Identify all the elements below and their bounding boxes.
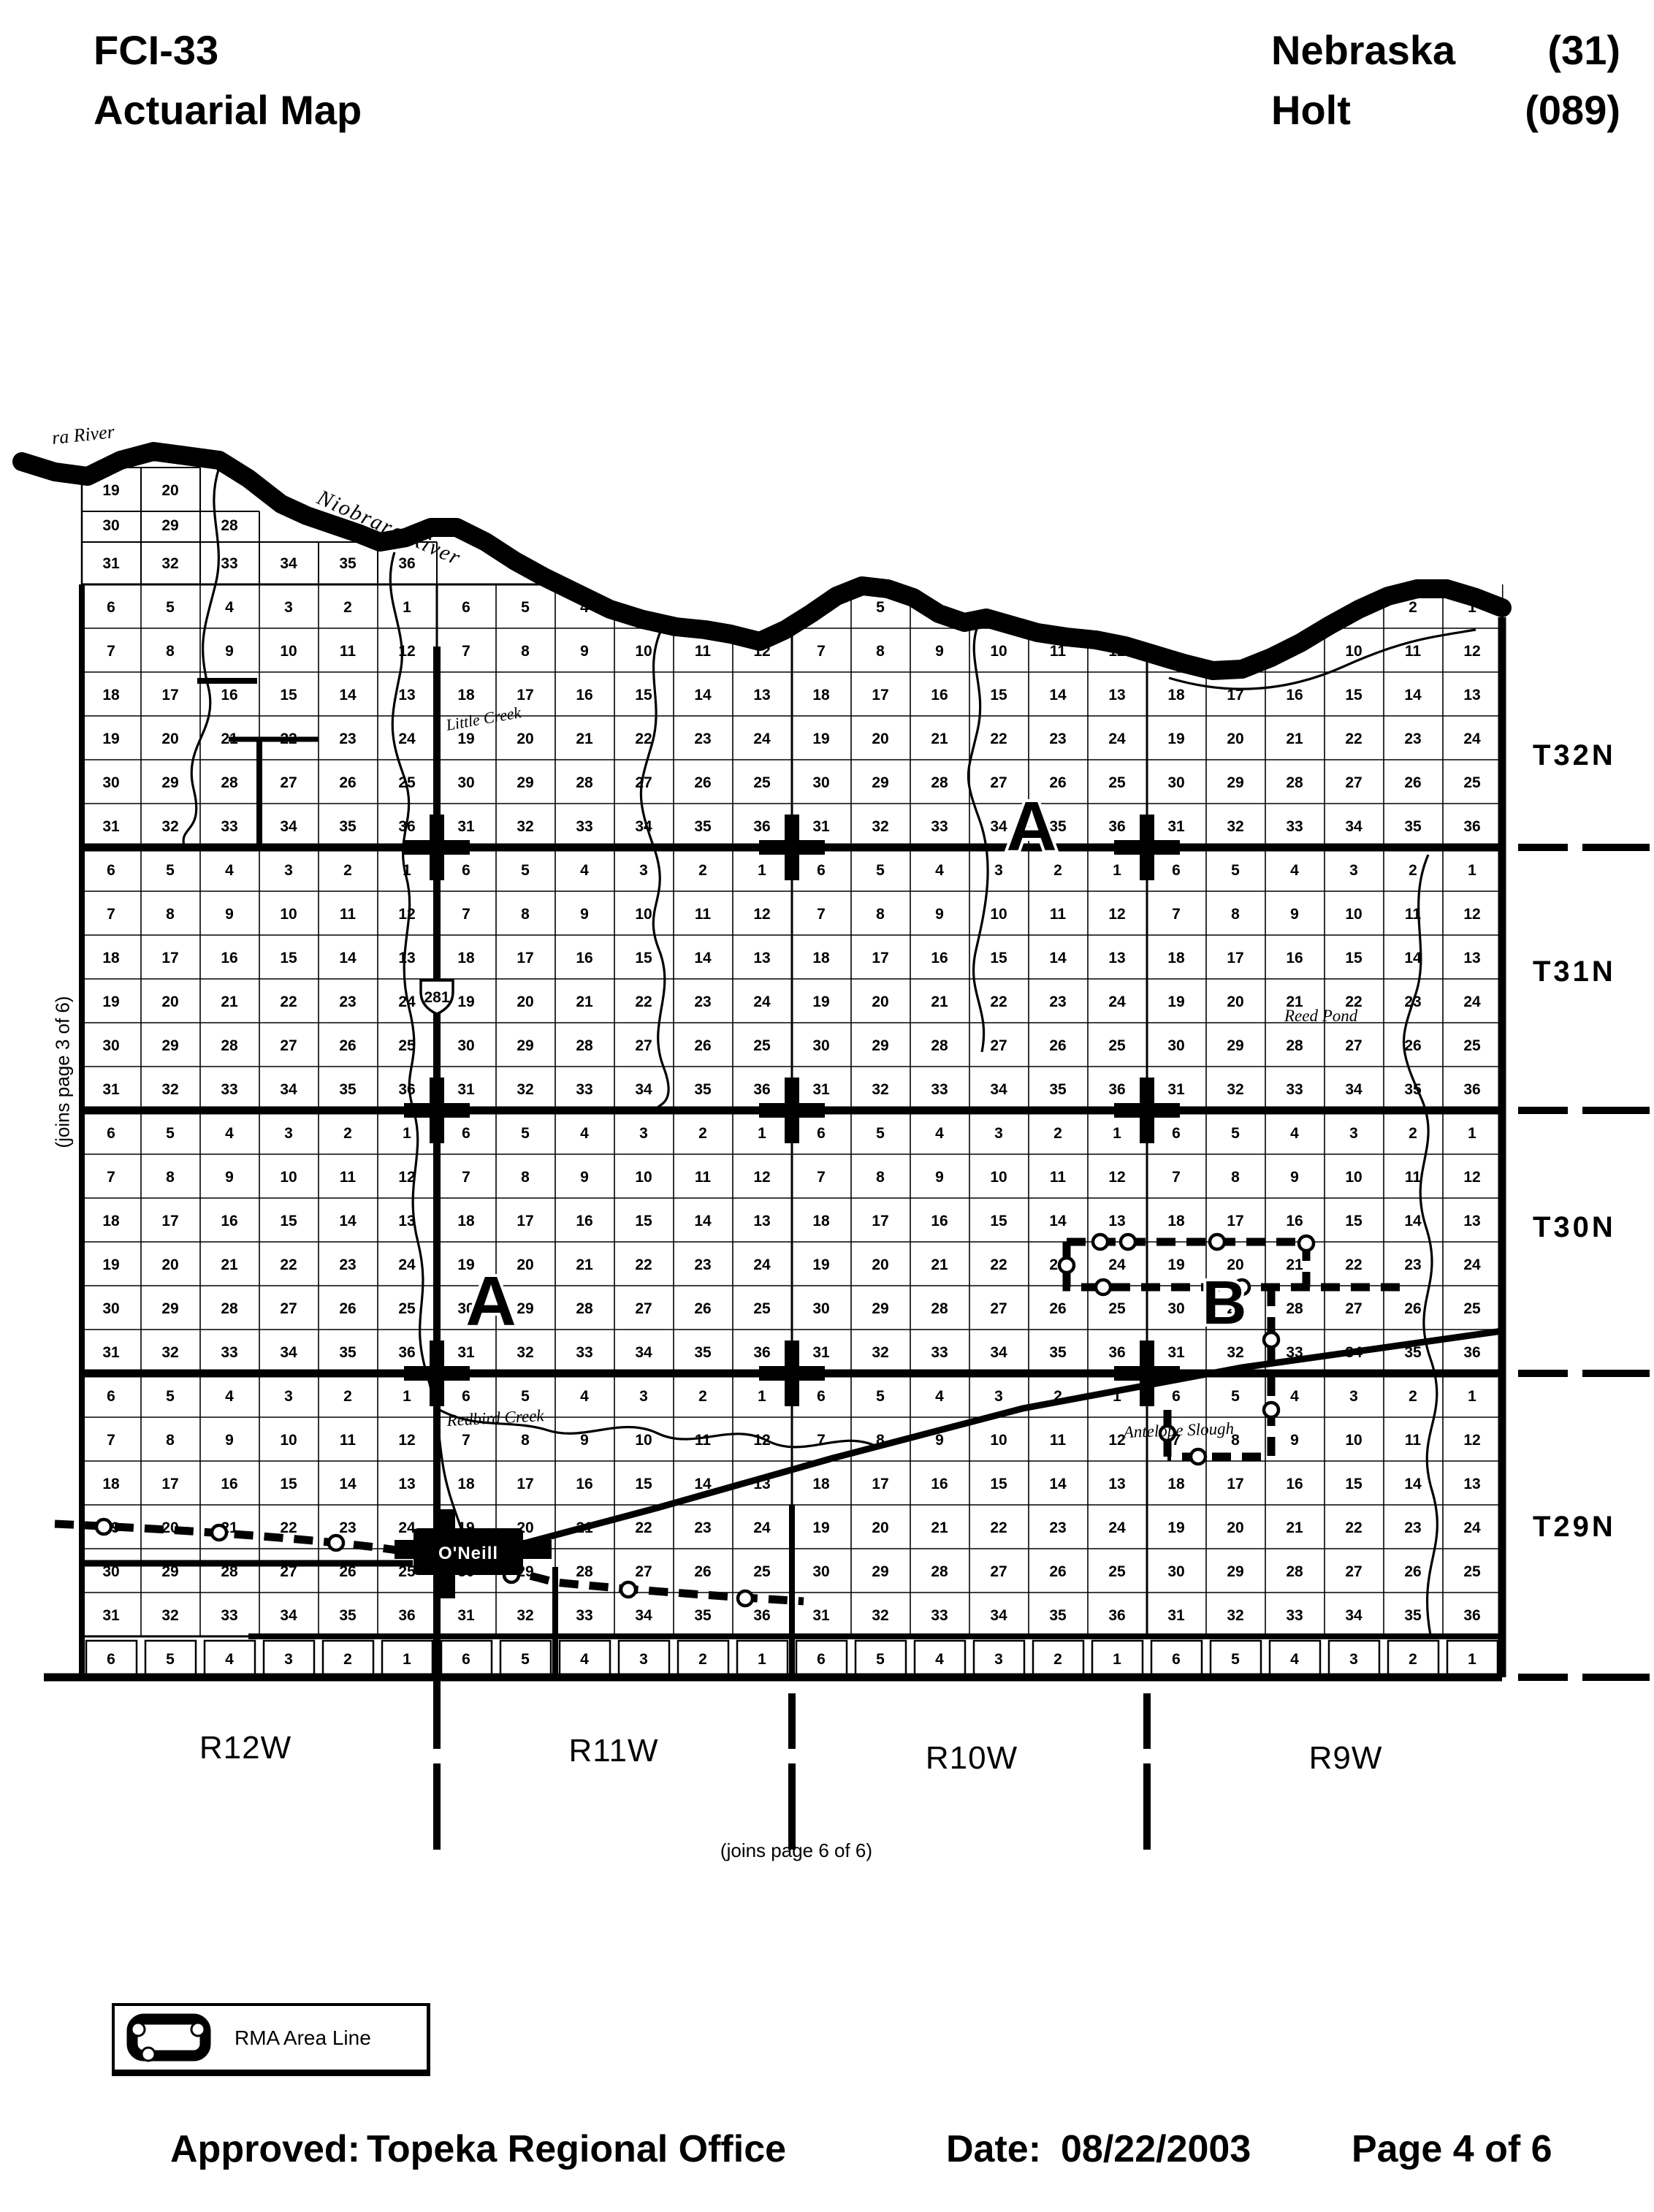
section-number: 5	[876, 1388, 885, 1405]
section-number: 35	[339, 1607, 357, 1624]
section-number: 32	[1227, 1607, 1243, 1624]
section-number: 24	[1108, 1256, 1126, 1273]
section-number: 1	[1113, 862, 1121, 879]
section-number: 3	[1349, 1651, 1358, 1668]
rma-node-circle	[1121, 1235, 1135, 1249]
section-number: 30	[1167, 1300, 1184, 1317]
section-number: 23	[1049, 994, 1066, 1010]
section-number: 16	[931, 1213, 948, 1229]
section-number: 35	[1049, 1081, 1067, 1098]
section-number: 23	[1404, 1519, 1421, 1536]
section-number: 23	[694, 1256, 711, 1273]
section-number: 20	[872, 1256, 888, 1273]
section-number: 8	[521, 1169, 530, 1186]
section-number: 7	[107, 643, 115, 660]
section-number: 11	[1050, 1169, 1067, 1186]
section-number: 9	[1290, 906, 1299, 923]
section-number: 29	[161, 1300, 178, 1317]
section-number: 31	[1167, 1081, 1185, 1098]
section-number: 16	[576, 1476, 592, 1492]
section-number: 3	[284, 1125, 293, 1142]
section-number: 27	[280, 1037, 297, 1054]
section-number: 20	[161, 1256, 178, 1273]
section-number: 33	[931, 818, 948, 835]
section-number: 8	[521, 906, 530, 923]
section-number: 14	[694, 950, 712, 966]
section-number: 24	[1463, 1519, 1481, 1536]
section-number: 32	[517, 1344, 533, 1361]
section-number: 29	[517, 1037, 533, 1054]
section-number: 22	[635, 1519, 652, 1536]
section-number: 23	[694, 994, 711, 1010]
section-number: 26	[1049, 1037, 1066, 1054]
section-number: 3	[284, 862, 293, 879]
section-number: 1	[1468, 1125, 1476, 1142]
section-number: 26	[694, 1300, 711, 1317]
section-number: 18	[457, 950, 475, 966]
section-number: 17	[872, 687, 888, 703]
section-number: 16	[1286, 1476, 1303, 1492]
section-number: 36	[398, 1081, 415, 1098]
section-number: 17	[1227, 1213, 1243, 1229]
section-number: 12	[398, 906, 415, 923]
section-number: 32	[161, 1344, 178, 1361]
township-label-t30n: T30N	[1533, 1211, 1616, 1244]
section-number: 19	[1167, 994, 1184, 1010]
section-number: 21	[221, 994, 238, 1010]
section-number: 35	[694, 1344, 712, 1361]
section-number: 6	[1172, 1651, 1181, 1668]
section-number: 28	[221, 517, 238, 534]
section-number: 4	[1290, 1125, 1299, 1142]
section-number: 35	[339, 1081, 357, 1098]
section-number: 9	[1290, 1432, 1299, 1449]
section-number: 17	[517, 687, 533, 703]
section-number: 21	[576, 994, 593, 1010]
section-number: 10	[990, 643, 1007, 660]
section-number: 14	[1404, 1476, 1422, 1492]
section-number: 29	[1227, 1563, 1243, 1580]
section-number: 9	[225, 906, 234, 923]
section-number: 18	[1167, 687, 1185, 703]
section-number: 15	[635, 687, 652, 703]
rma-node-circle	[1299, 1236, 1314, 1251]
section-number: 14	[1049, 1476, 1067, 1492]
section-number: 3	[994, 1388, 1003, 1405]
section-number: 34	[990, 818, 1007, 835]
section-number: 7	[817, 906, 826, 923]
section-number: 31	[102, 1081, 120, 1098]
section-number: 7	[462, 1432, 470, 1449]
section-number: 4	[580, 1125, 589, 1142]
section-number: 12	[398, 1432, 415, 1449]
section-number: 5	[521, 599, 530, 616]
section-number: 19	[102, 1256, 119, 1273]
section-number: 33	[221, 1081, 237, 1098]
section-number: 3	[639, 1125, 648, 1142]
rma-area-line-icon	[122, 2012, 216, 2064]
section-number: 6	[462, 1125, 470, 1142]
section-number: 4	[225, 1388, 234, 1405]
section-number: 14	[694, 687, 712, 703]
section-number: 4	[935, 1388, 944, 1405]
section-number: 20	[161, 994, 178, 1010]
section-number: 13	[1463, 1476, 1480, 1492]
section-number: 15	[990, 1476, 1007, 1492]
section-number: 24	[1108, 731, 1126, 747]
section-number: 2	[698, 1651, 707, 1668]
section-number: 26	[694, 1037, 711, 1054]
section-number: 9	[1290, 1169, 1299, 1186]
section-number: 34	[635, 1344, 652, 1361]
section-number: 2	[1409, 1125, 1417, 1142]
section-number: 34	[990, 1607, 1007, 1624]
section-number: 21	[1286, 731, 1303, 747]
section-number: 26	[1404, 1563, 1421, 1580]
section-number: 27	[990, 1563, 1007, 1580]
section-number: 13	[398, 687, 415, 703]
section-number: 26	[694, 774, 711, 791]
section-number: 19	[102, 731, 119, 747]
section-number: 9	[935, 1169, 944, 1186]
section-number: 8	[166, 1432, 175, 1449]
section-number: 30	[812, 1037, 829, 1054]
section-number: 20	[517, 994, 533, 1010]
section-number: 22	[990, 1519, 1007, 1536]
section-number: 1	[1468, 1388, 1476, 1405]
section-number: 6	[107, 1388, 115, 1405]
section-number: 28	[931, 1300, 948, 1317]
section-number: 33	[931, 1344, 948, 1361]
section-number: 27	[1345, 774, 1362, 791]
section-number: 13	[398, 1476, 415, 1492]
section-number: 10	[1345, 1169, 1362, 1186]
section-number: 1	[403, 599, 411, 616]
section-number: 14	[1404, 687, 1422, 703]
section-number: 14	[694, 1213, 712, 1229]
section-number: 15	[1345, 950, 1363, 966]
section-number: 11	[1050, 1432, 1067, 1449]
section-number: 18	[457, 1213, 475, 1229]
section-number: 17	[161, 950, 178, 966]
section-number: 10	[990, 1169, 1007, 1186]
section-number: 31	[1167, 1607, 1185, 1624]
section-number: 30	[1167, 1563, 1184, 1580]
section-number: 23	[339, 1519, 356, 1536]
rma-node-circle	[1264, 1403, 1278, 1417]
section-number: 32	[517, 818, 533, 835]
section-number: 22	[280, 994, 297, 1010]
section-number: 4	[225, 1651, 234, 1668]
section-number: 2	[343, 862, 352, 879]
section-number: 33	[1286, 818, 1303, 835]
section-number: 18	[102, 1213, 120, 1229]
section-number: 36	[1463, 1607, 1480, 1624]
section-number: 8	[166, 906, 175, 923]
section-number: 17	[161, 1213, 178, 1229]
section-number: 16	[221, 950, 237, 966]
section-number: 4	[935, 1651, 944, 1668]
section-number: 27	[990, 1037, 1007, 1054]
section-number: 11	[1405, 1169, 1422, 1186]
section-number: 34	[280, 818, 297, 835]
approved-label: Approved:	[170, 2127, 360, 2171]
section-number: 20	[1227, 1519, 1243, 1536]
section-number: 3	[1349, 1388, 1358, 1405]
section-number: 8	[876, 643, 885, 660]
section-number: 30	[102, 1300, 119, 1317]
section-number: 1	[758, 1388, 766, 1405]
section-number: 6	[107, 862, 115, 879]
section-number: 6	[1172, 1125, 1181, 1142]
section-number: 2	[1053, 1125, 1062, 1142]
section-number: 6	[817, 1125, 826, 1142]
section-number: 26	[694, 1563, 711, 1580]
section-number: 21	[1286, 1519, 1303, 1536]
section-number: 35	[1049, 1344, 1067, 1361]
section-number: 9	[935, 643, 944, 660]
section-number: 2	[698, 1125, 707, 1142]
section-number: 27	[990, 1300, 1007, 1317]
section-number: 24	[398, 1519, 416, 1536]
section-number: 5	[166, 1388, 175, 1405]
section-number: 20	[161, 482, 178, 499]
section-number: 31	[812, 1344, 830, 1361]
section-number: 28	[1286, 1300, 1303, 1317]
section-number: 14	[1404, 950, 1422, 966]
section-number: 22	[1345, 1256, 1362, 1273]
section-number: 31	[812, 1607, 830, 1624]
section-number: 5	[876, 1125, 885, 1142]
section-number: 6	[462, 1651, 470, 1668]
section-number: 3	[284, 1388, 293, 1405]
section-number: 22	[990, 994, 1007, 1010]
section-number: 34	[1345, 1081, 1363, 1098]
section-number: 29	[517, 774, 533, 791]
section-number: 18	[457, 1476, 475, 1492]
section-number: 3	[994, 1125, 1003, 1142]
section-number: 25	[398, 1300, 416, 1317]
section-number: 27	[280, 774, 297, 791]
section-number: 7	[107, 1169, 115, 1186]
section-number: 6	[1172, 1388, 1181, 1405]
section-number: 6	[107, 1651, 115, 1668]
section-number: 35	[339, 1344, 357, 1361]
section-number: 1	[758, 1651, 766, 1668]
section-number: 15	[280, 1213, 297, 1229]
range-label-r10w: R10W	[926, 1740, 1018, 1777]
section-number: 10	[1345, 1432, 1362, 1449]
section-number: 3	[639, 862, 648, 879]
section-number: 36	[753, 1344, 770, 1361]
section-number: 7	[817, 1169, 826, 1186]
section-number: 35	[694, 1607, 712, 1624]
section-number: 28	[576, 1037, 593, 1054]
range-label-r11w: R11W	[569, 1733, 659, 1769]
section-number: 2	[343, 1651, 352, 1668]
section-number: 36	[1108, 818, 1125, 835]
section-number: 36	[1108, 1607, 1125, 1624]
section-number: 27	[635, 1300, 652, 1317]
range-label-r12w: R12W	[199, 1730, 291, 1766]
section-number: 36	[398, 555, 415, 572]
section-number: 13	[753, 687, 770, 703]
section-number: 5	[876, 599, 885, 616]
section-number: 16	[931, 687, 948, 703]
section-number: 6	[817, 1388, 826, 1405]
section-number: 29	[872, 1037, 888, 1054]
section-number: 15	[280, 950, 297, 966]
section-number: 33	[576, 818, 592, 835]
section-number: 2	[1409, 1651, 1417, 1668]
section-number: 17	[1227, 1476, 1243, 1492]
section-number: 32	[1227, 1344, 1243, 1361]
section-number: 4	[580, 1651, 589, 1668]
township-label-t32n: T32N	[1533, 739, 1616, 772]
section-number: 15	[990, 687, 1007, 703]
section-number: 31	[102, 555, 120, 572]
section-number: 18	[812, 1213, 830, 1229]
section-number: 31	[1167, 818, 1185, 835]
section-number: 28	[576, 1300, 593, 1317]
section-number: 18	[812, 687, 830, 703]
section-number: 28	[1286, 1037, 1303, 1054]
section-number: 11	[695, 1432, 712, 1449]
section-number: 24	[1463, 994, 1481, 1010]
section-number: 18	[102, 1476, 120, 1492]
section-number: 28	[221, 1037, 238, 1054]
section-number: 20	[517, 731, 533, 747]
section-number: 14	[339, 1476, 357, 1492]
section-number: 29	[161, 774, 178, 791]
section-number: 11	[1050, 906, 1067, 923]
section-number: 19	[1167, 731, 1184, 747]
section-number: 10	[280, 906, 297, 923]
section-number: 26	[339, 774, 356, 791]
creek-path	[968, 622, 988, 1052]
section-number: 27	[1345, 1037, 1362, 1054]
section-number: 32	[872, 818, 888, 835]
section-number: 22	[635, 994, 652, 1010]
section-number: 10	[990, 1432, 1007, 1449]
section-number: 8	[521, 643, 530, 660]
section-number: 32	[872, 1344, 888, 1361]
rma-node-circle	[738, 1591, 752, 1606]
section-number: 6	[462, 1388, 470, 1405]
section-number: 28	[931, 1563, 948, 1580]
section-number: 10	[280, 1432, 297, 1449]
section-number: 27	[990, 774, 1007, 791]
slough-label: Antelope Slough	[1121, 1419, 1234, 1441]
section-number: 19	[1167, 1256, 1184, 1273]
section-number: 18	[457, 687, 475, 703]
section-number: 34	[635, 1607, 652, 1624]
rma-node-circle	[621, 1582, 636, 1597]
section-number: 24	[1463, 1256, 1481, 1273]
section-number: 26	[339, 1300, 356, 1317]
section-number: 12	[753, 1169, 770, 1186]
section-number: 15	[635, 1213, 652, 1229]
creek-path	[183, 468, 219, 846]
section-number: 12	[1463, 1432, 1480, 1449]
section-number: 15	[1345, 1213, 1363, 1229]
section-number: 31	[812, 818, 830, 835]
section-number: 8	[521, 1432, 530, 1449]
section-number: 13	[753, 950, 770, 966]
section-number: 18	[1167, 950, 1185, 966]
section-number: 4	[225, 862, 234, 879]
section-number: 17	[872, 1476, 888, 1492]
section-number: 4	[1290, 1651, 1299, 1668]
section-number: 25	[1463, 774, 1481, 791]
section-number: 13	[753, 1213, 770, 1229]
section-number: 24	[1108, 1519, 1126, 1536]
section-number: 24	[398, 1256, 416, 1273]
section-number: 22	[990, 1256, 1007, 1273]
section-number: 12	[1463, 643, 1480, 660]
section-number: 25	[1108, 1563, 1126, 1580]
section-number: 36	[398, 1607, 415, 1624]
section-number: 18	[102, 687, 120, 703]
section-number: 4	[225, 1125, 234, 1142]
section-number: 32	[872, 1081, 888, 1098]
section-number: 19	[102, 482, 119, 499]
section-number: 8	[1231, 906, 1240, 923]
rma-node-circle	[96, 1519, 111, 1534]
section-number: 17	[872, 1213, 888, 1229]
section-number: 27	[1345, 1563, 1362, 1580]
section-number: 34	[635, 1081, 652, 1098]
section-number: 29	[1227, 1037, 1243, 1054]
section-number: 36	[1108, 1344, 1125, 1361]
section-number: 20	[872, 731, 888, 747]
section-number: 11	[340, 643, 357, 660]
section-number: 23	[1404, 731, 1421, 747]
section-number: 36	[753, 818, 770, 835]
area-marker-a: A	[465, 1262, 516, 1340]
rma-node-circle	[1191, 1449, 1205, 1464]
area-marker-b: B	[1203, 1268, 1247, 1337]
section-number: 29	[161, 517, 178, 534]
legend-label: RMA Area Line	[235, 2026, 371, 2050]
section-number: 2	[1409, 862, 1417, 879]
date-label: Date:	[946, 2127, 1041, 2171]
section-number: 16	[1286, 687, 1303, 703]
section-number: 8	[166, 1169, 175, 1186]
section-number: 25	[753, 1037, 771, 1054]
section-number: 31	[457, 1344, 475, 1361]
section-number: 30	[102, 1037, 119, 1054]
section-number: 2	[698, 862, 707, 879]
section-number: 32	[161, 1081, 178, 1098]
footer: Approved: Topeka Regional Office Date: 0…	[0, 2127, 1654, 2178]
section-number: 27	[635, 1037, 652, 1054]
section-number: 4	[580, 862, 589, 879]
section-number: 26	[1049, 1563, 1066, 1580]
section-number: 10	[635, 1169, 652, 1186]
section-number: 32	[161, 555, 178, 572]
section-number: 2	[698, 1388, 707, 1405]
section-number: 27	[280, 1300, 297, 1317]
section-number: 36	[1463, 1344, 1480, 1361]
section-number: 22	[1345, 1519, 1362, 1536]
section-number: 7	[107, 1432, 115, 1449]
section-number: 23	[339, 731, 356, 747]
section-number: 9	[580, 643, 589, 660]
section-number: 24	[1463, 731, 1481, 747]
section-number: 12	[1108, 906, 1125, 923]
section-number: 11	[695, 906, 712, 923]
